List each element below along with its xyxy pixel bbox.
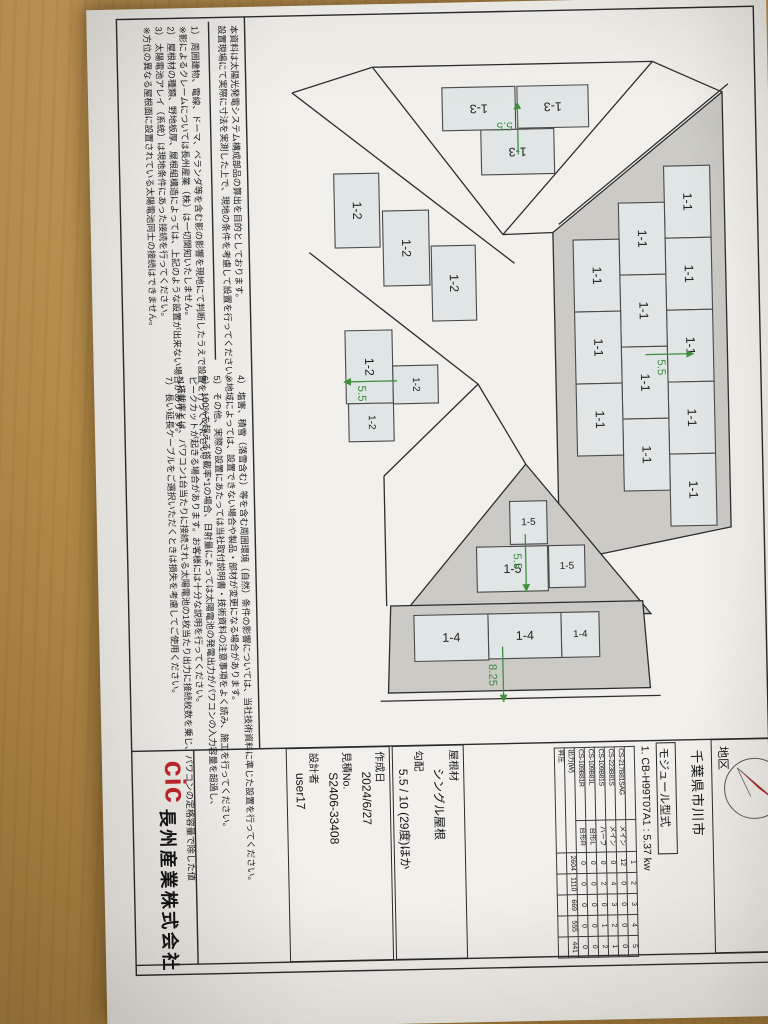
table-cell: 0 xyxy=(618,936,628,957)
panel-label: 1-1 xyxy=(683,336,697,354)
table-cell: 1 xyxy=(598,915,608,936)
table-cell: 0 xyxy=(588,936,598,957)
table-cell: 1110 xyxy=(567,874,577,895)
district-label: 地区 xyxy=(715,746,732,770)
pitch-1-2: 5.5 xyxy=(355,385,367,401)
table-cell: 2 xyxy=(608,915,618,936)
panel-label: 1-2 xyxy=(362,358,376,376)
roof-material-label: 屋根材 xyxy=(446,750,462,782)
panel-label: 1-4 xyxy=(573,629,588,640)
table-cell: 0 xyxy=(576,852,586,873)
module-title: モジュール型式 xyxy=(656,747,674,827)
table-cell xyxy=(558,937,568,958)
pitch-1-4: 8.25 xyxy=(486,664,498,687)
panel-label: 1-3 xyxy=(544,99,562,113)
table-cell: CS-223B81S xyxy=(604,747,616,820)
table-cell: 4 xyxy=(607,873,617,894)
roof-pitch-label: 勾配 xyxy=(411,750,426,771)
table-cell: CS-109B81L xyxy=(584,747,596,820)
table-cell: 1 xyxy=(608,936,618,957)
pitch-1-5: 5.5 xyxy=(511,553,523,569)
table-cell: 0 xyxy=(586,852,596,873)
table-cell: 0 xyxy=(577,873,587,894)
panel-label: 1-1 xyxy=(685,408,699,426)
table-cell: 0 xyxy=(596,852,606,873)
panel-label: 1-1 xyxy=(680,193,694,211)
created-value: 2024/6/27 xyxy=(359,771,374,825)
table-cell xyxy=(624,746,636,819)
table-cell: 0 xyxy=(578,915,588,936)
panel-label: 1-2 xyxy=(447,274,461,292)
module-title-box: モジュール型式 xyxy=(656,742,678,854)
table-cell: 1 xyxy=(626,851,636,872)
panel-label: 1-4 xyxy=(442,631,460,645)
designer-label: 設計者 xyxy=(306,752,322,784)
created-label: 作成日 xyxy=(372,751,388,783)
table-cell: 0 xyxy=(618,915,628,936)
panel-label: 1-3 xyxy=(470,101,488,115)
panel-label: 1-1 xyxy=(590,266,604,284)
table-cell: 0 xyxy=(577,894,587,915)
panel-label: 1-1 xyxy=(686,480,700,498)
table-cell: 12 xyxy=(616,852,626,873)
table-cell: 2 xyxy=(627,872,637,893)
panel-label: 1-2 xyxy=(399,239,413,257)
table-cell xyxy=(558,916,568,937)
panel-label: 1-1 xyxy=(638,373,652,391)
table-cell: 0 xyxy=(587,894,597,915)
panel-label: 1-5 xyxy=(521,517,536,528)
pitch-1-1: 5.5 xyxy=(655,359,667,375)
module-count-table: 12345CS-217B81SAGメイン120000CS-223B81Sメイン0… xyxy=(554,746,639,959)
table-cell: メイン xyxy=(616,820,627,852)
panel-label: 1-2 xyxy=(350,201,364,219)
photo-of-desk: 1-11-11-11-11-11-11-11-11-11-11-11-11-21… xyxy=(0,0,768,1024)
table-cell: 555 xyxy=(568,916,578,937)
table-cell: 0 xyxy=(617,894,627,915)
pitch-1-3: 5.5 xyxy=(497,119,513,131)
table-cell xyxy=(557,874,567,895)
table-cell: 4 xyxy=(628,914,638,935)
panel-label: 1-2 xyxy=(410,377,421,392)
panel-label: 1-5 xyxy=(560,561,575,572)
table-cell: 0 xyxy=(597,894,607,915)
drawing-sheet: 1-11-11-11-11-11-11-11-11-11-11-11-11-21… xyxy=(86,0,768,1024)
panel-label: 1-1 xyxy=(593,410,607,428)
table-cell: メイン xyxy=(606,820,617,852)
panel-label: 1-1 xyxy=(639,445,653,463)
table-cell: 2 xyxy=(598,936,608,957)
table-cell: CS-109B81S xyxy=(594,747,606,820)
roof-pitch-value: 5.5 / 10 (29度)ほか xyxy=(395,769,414,870)
district-box: 地区 xyxy=(711,738,768,953)
table-cell: 0 xyxy=(578,936,588,957)
table-cell: ハーフ xyxy=(596,820,607,852)
panel-label: 1-1 xyxy=(682,264,696,282)
table-cell: 台形L xyxy=(586,820,597,852)
table-cell: 3 xyxy=(607,894,617,915)
table-cell: 台形R xyxy=(576,820,587,852)
roof-material-value: シングル屋根 xyxy=(430,768,449,840)
panel-label: 1-2 xyxy=(366,415,377,430)
panel-label: 1-1 xyxy=(636,301,650,319)
table-cell xyxy=(557,895,567,916)
table-cell: CS-109B81R xyxy=(574,747,586,820)
panel-label: 1-1 xyxy=(591,338,605,356)
quote-no-label: 見積No. xyxy=(339,752,355,790)
table-cell: 0 xyxy=(606,852,616,873)
table-cell: 441 xyxy=(568,937,578,958)
meta-box: 作成日 2024/6/27 見積No. S2406-33408 設計者 user… xyxy=(286,746,394,962)
quote-no-value: S2406-33408 xyxy=(326,772,342,844)
table-cell xyxy=(626,819,637,851)
table-cell: 0 xyxy=(588,915,598,936)
notes-column-2: 4） 塩害、積雪（落雪含む）等を含む周囲環境（自然）条件の影響については、当社技… xyxy=(163,375,258,887)
table-cell: 3 xyxy=(627,893,637,914)
table-cell xyxy=(556,853,566,874)
roof-info-box: 屋根材 シングル屋根 勾配 5.5 / 10 (29度)ほか xyxy=(392,744,468,959)
designer-value: user17 xyxy=(293,773,308,810)
panel-label: 1-4 xyxy=(516,629,534,643)
table-cell: 2604 xyxy=(566,853,576,874)
table-cell: 0 xyxy=(617,873,627,894)
table-cell: 669 xyxy=(567,895,577,916)
table-cell: CS-217B81SAG xyxy=(614,747,626,820)
panel-label: 1-1 xyxy=(635,229,649,247)
table-cell: 0 xyxy=(587,873,597,894)
table-cell: 2 xyxy=(597,873,607,894)
table-cell: 5 xyxy=(628,935,638,956)
district-value: 千葉県市川市 xyxy=(688,749,710,836)
